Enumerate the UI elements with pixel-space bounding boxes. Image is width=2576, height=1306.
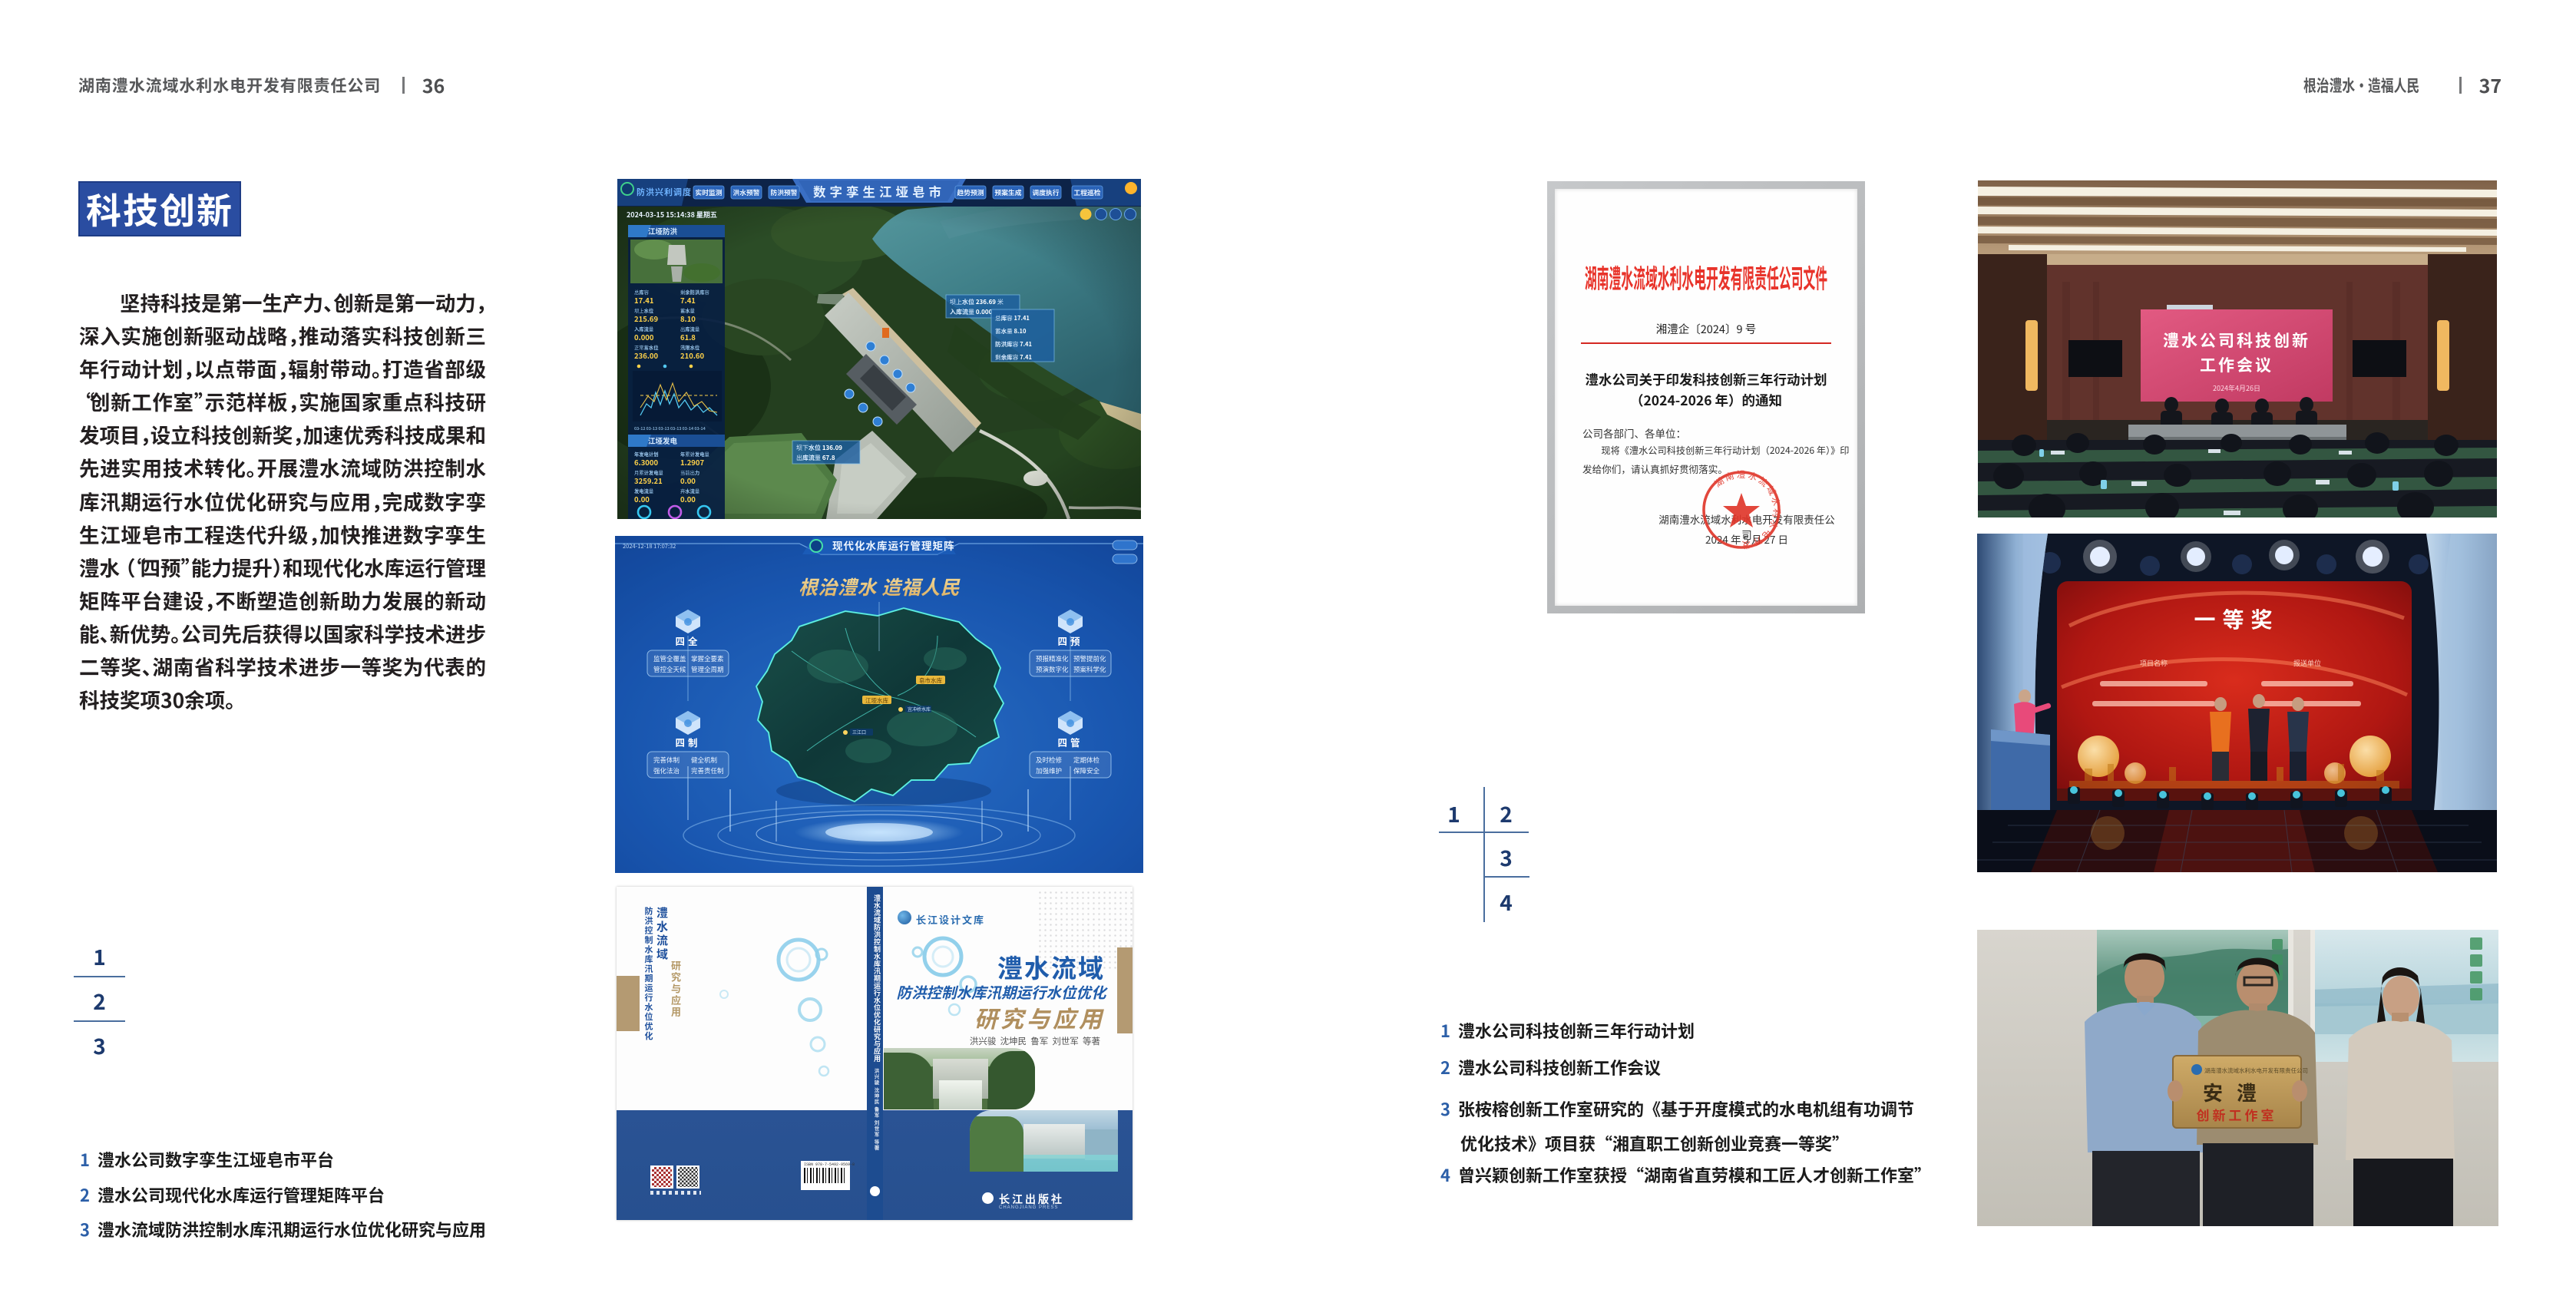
- svg-text:0.00: 0.00: [634, 494, 650, 504]
- svg-text:澧水公司科技创新: 澧水公司科技创新: [2163, 329, 2310, 352]
- svg-text:定期体检: 定期体检: [1073, 755, 1100, 765]
- svg-text:安澧: 安澧: [2203, 1078, 2270, 1106]
- svg-text:江垭防洪: 江垭防洪: [648, 226, 678, 236]
- svg-text:三江口: 三江口: [852, 729, 866, 736]
- svg-text:掌握全要素: 掌握全要素: [691, 654, 724, 663]
- svg-text:总库容 17.41: 总库容 17.41: [995, 314, 1030, 322]
- svg-text:210.60: 210.60: [680, 350, 705, 361]
- svg-text:洪水预警: 洪水预警: [732, 187, 759, 197]
- svg-text:7.41: 7.41: [680, 295, 696, 306]
- svg-text:61.8: 61.8: [680, 332, 696, 342]
- svg-text:管理全周期: 管理全周期: [691, 665, 724, 674]
- svg-text:蓄水量 8.10: 蓄水量 8.10: [995, 327, 1027, 336]
- svg-text:工作会议: 工作会议: [2200, 353, 2273, 376]
- svg-text:现代化水库运行管理矩阵: 现代化水库运行管理矩阵: [832, 537, 955, 553]
- svg-text:项目名称: 项目名称: [2140, 658, 2168, 668]
- svg-text:0.00: 0.00: [680, 494, 696, 504]
- svg-text:一等奖: 一等奖: [2194, 603, 2279, 634]
- svg-text:预演数字化: 预演数字化: [1036, 665, 1069, 674]
- svg-text:江垭发电: 江垭发电: [648, 435, 678, 446]
- svg-text:坝上水位 236.69 米: 坝上水位 236.69 米: [950, 298, 1004, 306]
- svg-text:管控全天候: 管控全天候: [653, 665, 686, 674]
- svg-text:215.69: 215.69: [634, 313, 659, 324]
- svg-text:预案生成: 预案生成: [994, 187, 1021, 197]
- svg-text:完善体制: 完善体制: [653, 755, 680, 765]
- svg-text:皂市水库: 皂市水库: [919, 676, 942, 685]
- svg-text:预警提前化: 预警提前化: [1073, 654, 1106, 663]
- svg-text:实时监测: 实时监测: [695, 187, 722, 197]
- svg-text:报送单位: 报送单位: [2293, 658, 2321, 668]
- svg-text:江垭水库: 江垭水库: [865, 696, 888, 705]
- svg-text:调度执行: 调度执行: [1032, 187, 1059, 197]
- svg-text:1.2907: 1.2907: [680, 457, 705, 468]
- svg-text:0.00: 0.00: [680, 475, 696, 486]
- svg-text:健全机制: 健全机制: [691, 755, 717, 765]
- svg-text:坝下水位 136.09: 坝下水位 136.09: [796, 444, 842, 452]
- svg-text:监管全覆盖: 监管全覆盖: [653, 654, 686, 663]
- svg-text:236.00: 236.00: [634, 350, 659, 361]
- svg-text:创新工作室: 创新工作室: [2197, 1105, 2277, 1124]
- svg-text:8.10: 8.10: [680, 313, 696, 324]
- svg-text:湖南澧水流域水利水电开发有限责任公司: 湖南澧水流域水利水电开发有限责任公司: [2204, 1066, 2308, 1075]
- svg-text:根治澧水 造福人民: 根治澧水 造福人民: [799, 573, 961, 600]
- svg-text:2024-03-15 15:14:38 星期五: 2024-03-15 15:14:38 星期五: [627, 210, 717, 220]
- svg-text:入库流量 0.000: 入库流量 0.000: [950, 308, 993, 316]
- svg-text:预案科学化: 预案科学化: [1073, 665, 1106, 674]
- svg-text:加强维护: 加强维护: [1036, 766, 1062, 775]
- svg-text:保障安全: 保障安全: [1073, 766, 1100, 775]
- svg-text:及时检修: 及时检修: [1036, 755, 1063, 765]
- svg-text:防洪兴利调度: 防洪兴利调度: [637, 186, 692, 198]
- svg-text:防洪预警: 防洪预警: [770, 187, 797, 197]
- svg-text:2024-12-18 17:07:32: 2024-12-18 17:07:32: [623, 542, 676, 551]
- svg-text:出库流量 67.8: 出库流量 67.8: [796, 454, 835, 462]
- svg-text:四全: 四全: [675, 633, 700, 648]
- svg-text:四制: 四制: [675, 735, 700, 749]
- svg-text:6.3000: 6.3000: [634, 457, 659, 468]
- svg-text:趋势预测: 趋势预测: [957, 187, 984, 197]
- svg-text:03-12 03-13 03-13 03-13 03: 03-12 03-13 03-13 03-13 03-14 03-14: [634, 425, 706, 431]
- svg-text:数字孪生江垭皂市: 数字孪生江垭皂市: [813, 182, 945, 200]
- svg-text:宜冲桥水库: 宜冲桥水库: [908, 706, 931, 713]
- svg-text:完善责任制: 完善责任制: [691, 766, 724, 775]
- svg-text:强化法治: 强化法治: [653, 766, 680, 775]
- svg-text:3259.21: 3259.21: [634, 475, 663, 486]
- svg-text:17.41: 17.41: [634, 295, 654, 306]
- svg-text:防洪库容 7.41: 防洪库容 7.41: [995, 340, 1032, 349]
- svg-text:预报精准化: 预报精准化: [1036, 654, 1069, 663]
- svg-text:工程巡检: 工程巡检: [1073, 187, 1100, 197]
- svg-text:剩余库容 7.41: 剩余库容 7.41: [995, 353, 1032, 362]
- svg-text:四预: 四预: [1057, 633, 1083, 648]
- svg-text:四管: 四管: [1057, 735, 1083, 749]
- svg-text:2024年4月26日: 2024年4月26日: [2213, 383, 2260, 393]
- svg-text:0.000: 0.000: [634, 332, 654, 342]
